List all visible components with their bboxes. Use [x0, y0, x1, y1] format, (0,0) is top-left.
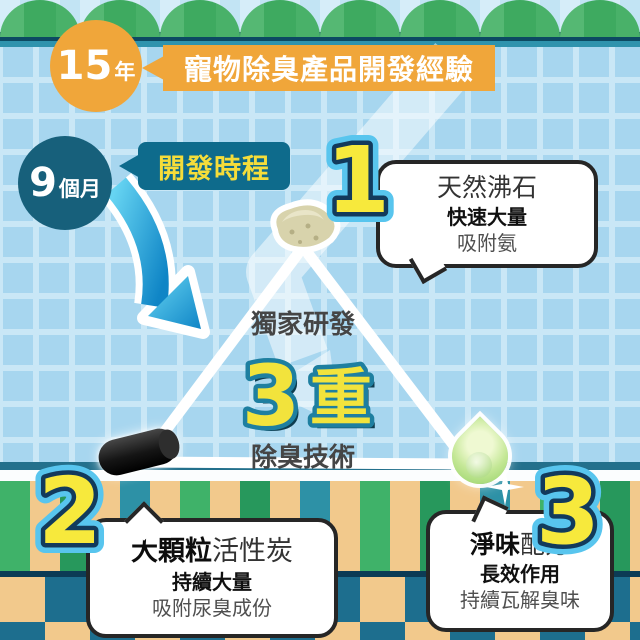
triple-number-art: 3 重 3 重 — [213, 341, 393, 439]
timeline-badge: 9 個月 — [18, 136, 112, 230]
point-line2: 長效作用 — [480, 561, 560, 587]
experience-banner: 寵物除臭產品開發經驗 — [163, 45, 495, 91]
big-number: 3 — [242, 347, 300, 439]
point-title-rest: 活性炭 — [212, 536, 293, 567]
experience-badge: 15 年 — [50, 20, 142, 112]
blue-arrow-icon — [116, 186, 203, 332]
zeolite-stone-icon — [273, 202, 337, 250]
banner-tail — [119, 154, 140, 178]
point-bubble-formula: 淨味配方 長效作用 持續瓦解臭味 — [426, 510, 614, 632]
timeline-label: 開發時程 — [158, 147, 270, 186]
experience-label: 寵物除臭產品開發經驗 — [184, 48, 474, 88]
point-title-rest: 配方 — [520, 530, 570, 559]
point-title: 天然沸石 — [437, 172, 537, 203]
point-line3: 持續瓦解臭味 — [460, 587, 580, 613]
point-line2: 持續大量 — [172, 569, 252, 595]
experience-value: 15 — [57, 46, 113, 86]
point-line3: 吸附氨 — [457, 230, 517, 256]
point-bubble-zeolite: 天然沸石 快速大量 吸附氨 — [376, 160, 598, 268]
point-line2: 快速大量 — [447, 204, 527, 230]
timeline-banner: 開發時程 — [138, 142, 290, 190]
experience-unit: 年 — [114, 50, 135, 83]
big-unit: 重 — [310, 361, 372, 434]
center-tagline: 獨家研發 3 重 3 重 除臭技術 — [213, 310, 393, 474]
point-bubble-carbon: 大顆粒活性炭 持續大量 吸附尿臭成份 — [86, 518, 338, 638]
tagline-bottom: 除臭技術 — [213, 443, 393, 474]
timeline-unit: 個月 — [59, 167, 101, 200]
point-title-bold: 淨味 — [470, 530, 520, 559]
droplet-highlight — [466, 452, 492, 478]
tagline-top: 獨家研發 — [213, 310, 393, 341]
infographic-poster: 15 年 寵物除臭產品開發經驗 9 個月 開發時程 獨家研發 3 重 3 重 除… — [0, 0, 640, 640]
timeline-value: 9 — [29, 163, 57, 203]
point-title: 大顆粒活性炭 — [131, 535, 293, 569]
banner-tail — [142, 56, 164, 80]
point-title-rest: 天然沸石 — [437, 173, 537, 202]
point-line3: 吸附尿臭成份 — [152, 595, 272, 621]
point-title: 淨味配方 — [470, 529, 570, 560]
